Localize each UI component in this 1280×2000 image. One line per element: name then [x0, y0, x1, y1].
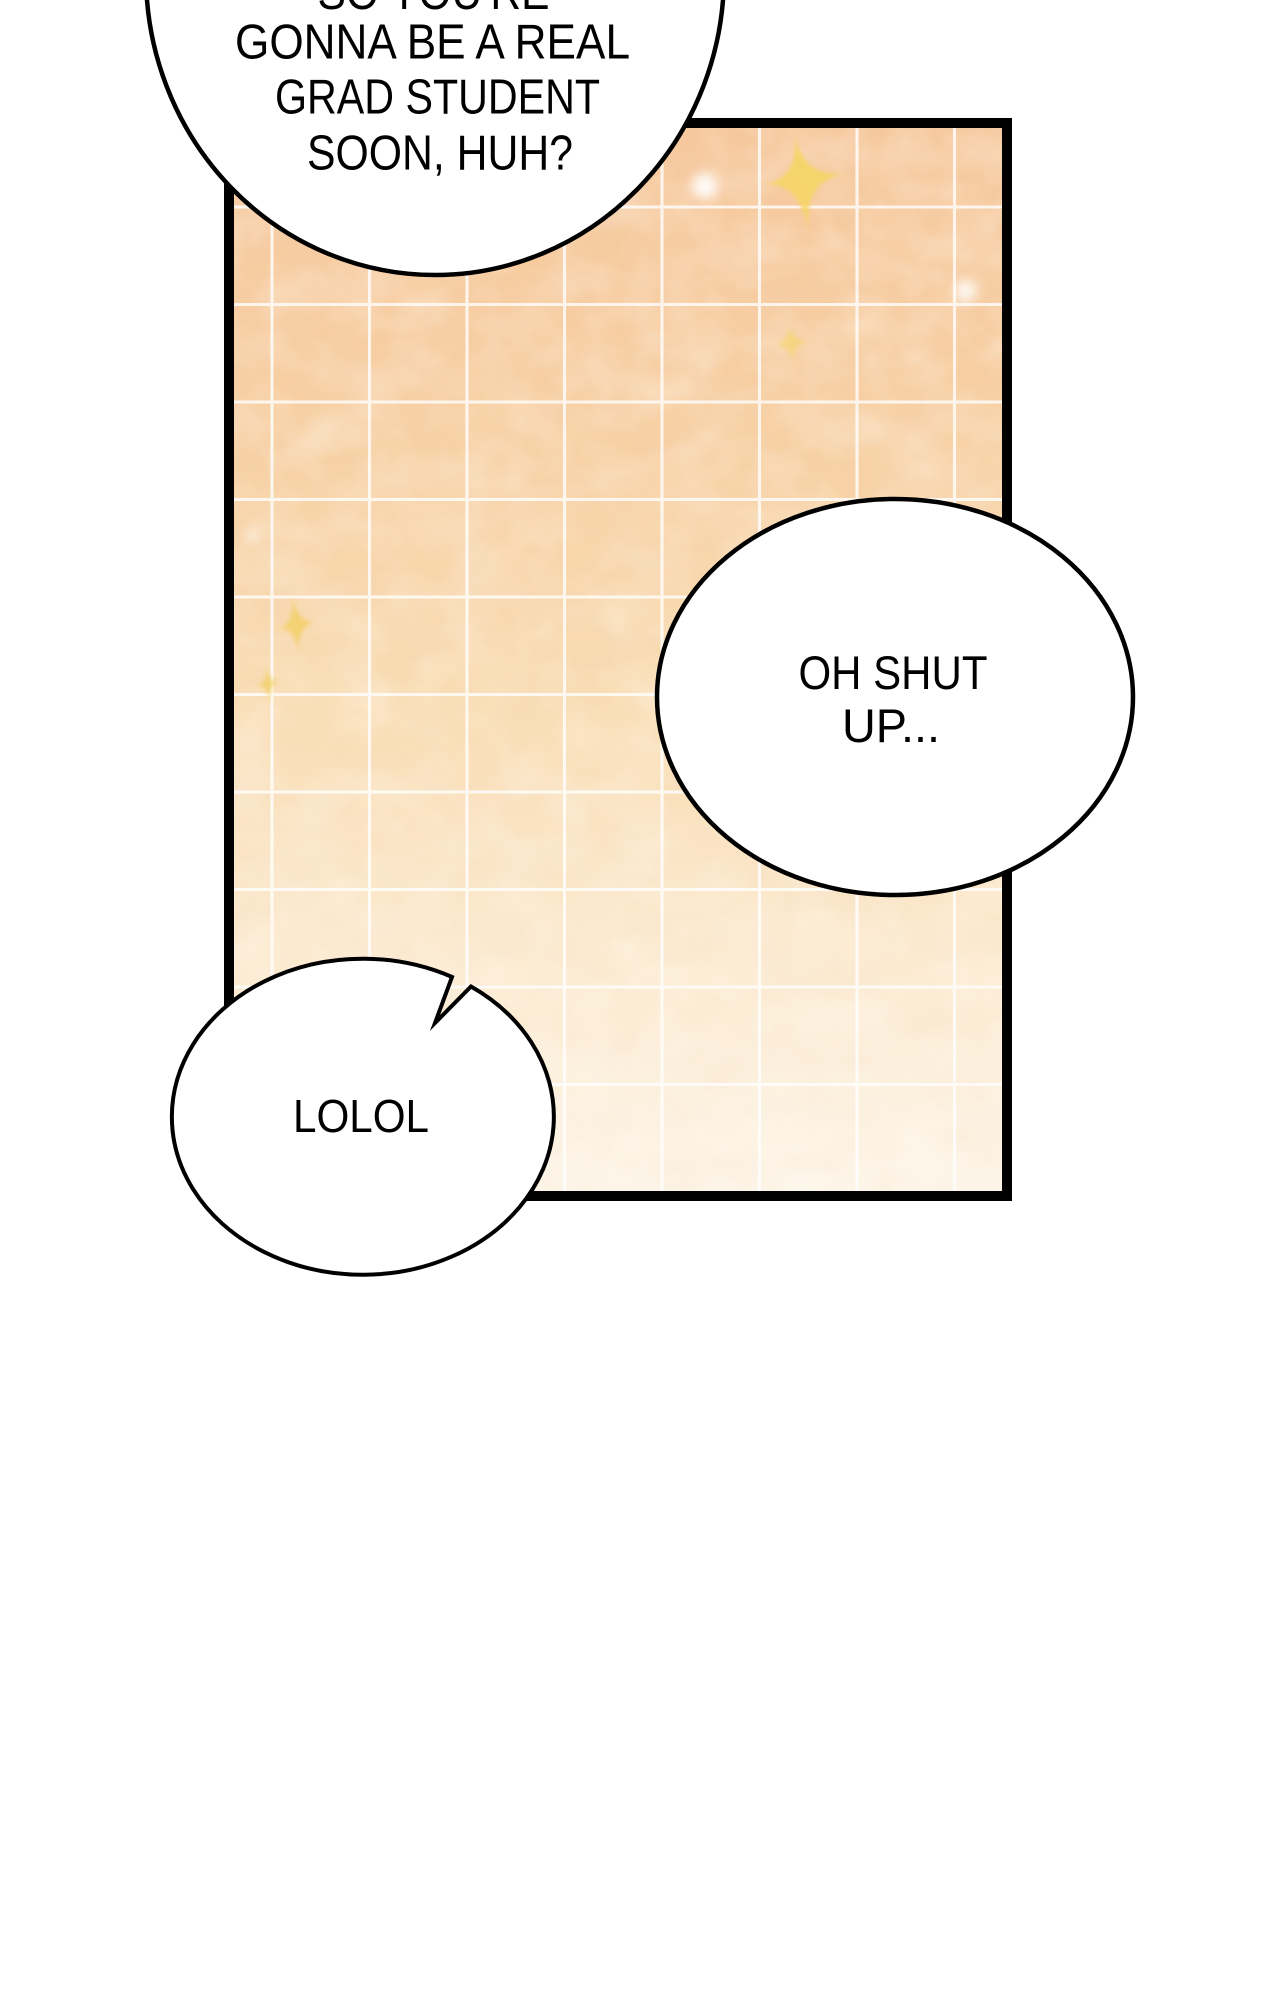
- svg-text:LOLOL: LOLOL: [293, 1090, 429, 1142]
- svg-text:SOON, HUH?: SOON, HUH?: [307, 127, 573, 181]
- svg-text:OH SHUT: OH SHUT: [799, 646, 988, 699]
- svg-text:UP...: UP...: [842, 699, 940, 752]
- svg-text:GONNA BE A REAL: GONNA BE A REAL: [235, 16, 630, 70]
- svg-text:GRAD STUDENT: GRAD STUDENT: [275, 71, 600, 125]
